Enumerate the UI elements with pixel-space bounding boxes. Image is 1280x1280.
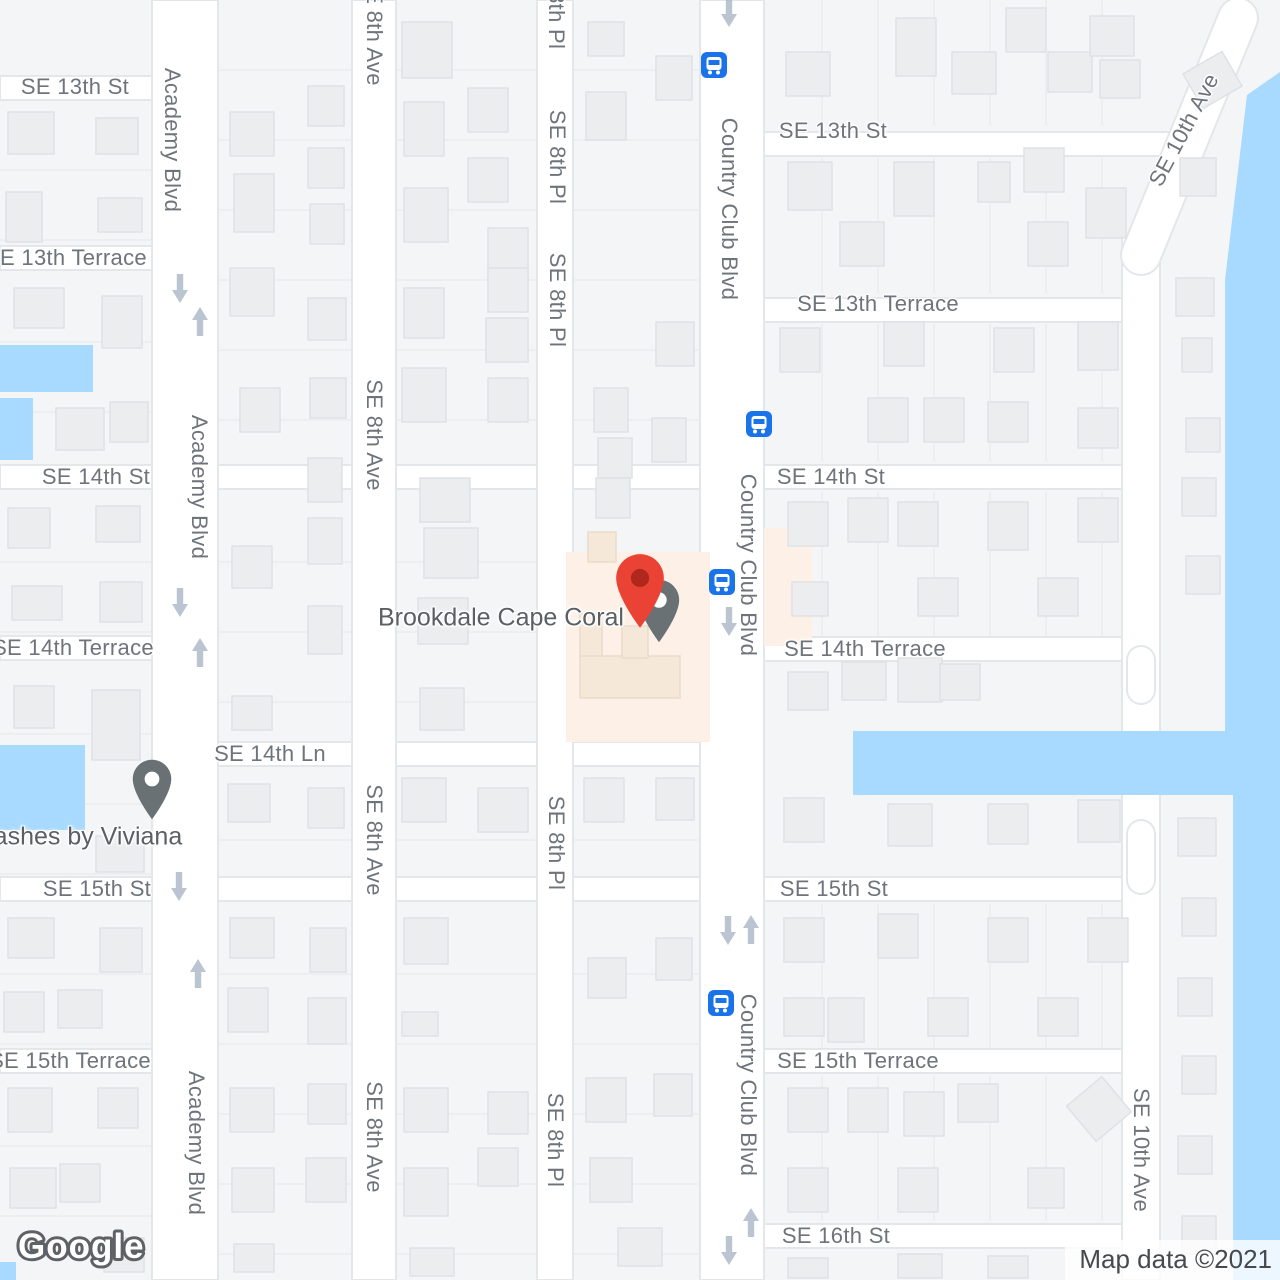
street-label: SE 8th Ave (361, 379, 387, 490)
street-label: SE 8th Ave (361, 784, 387, 895)
one-way-arrow-down-icon (168, 870, 190, 908)
map-pin-gray-viviana[interactable] (131, 758, 173, 826)
bus-stop-icon[interactable] (709, 569, 735, 600)
street-label: SE 14th St (42, 464, 150, 490)
google-logo-text: Google (18, 1227, 145, 1266)
street-label: SE 13th St (779, 118, 887, 144)
street-label: SE 15th Terrace (0, 1048, 151, 1074)
one-way-arrow-up-icon (740, 913, 762, 951)
street-label: SE 15th Terrace (777, 1048, 939, 1074)
street-label: Country Club Blvd (735, 994, 761, 1176)
street-label: SE 14th Terrace (0, 635, 154, 661)
one-way-arrow-up-icon (187, 957, 209, 995)
bus-stop-icon[interactable] (701, 52, 727, 83)
street-label: SE 14th Ln (214, 741, 326, 767)
street-label: SE 8th Pl (542, 1093, 568, 1187)
street-label: Academy Blvd (159, 68, 185, 212)
map-canvas[interactable]: Academy BlvdAcademy BlvdAcademy BlvdSE 8… (0, 0, 1280, 1280)
street-label: SE 16th St (782, 1223, 890, 1249)
one-way-arrow-up-icon (189, 636, 211, 674)
street-label: SE 13th St (21, 74, 129, 100)
poi-label[interactable]: Lashes by Viviana (0, 823, 182, 852)
street-label: SE 8th Ave (361, 1081, 387, 1192)
one-way-arrow-down-icon (717, 914, 739, 952)
street-label: SE 8th Pl (544, 110, 570, 204)
street-label: SE 8th Pl (544, 253, 570, 347)
street-label: Academy Blvd (183, 1071, 209, 1215)
street-label: SE 15th St (780, 876, 888, 902)
street-label: SE 10th Ave (1143, 69, 1224, 191)
one-way-arrow-down-icon (718, 0, 740, 34)
map-pin-red-brookdale[interactable] (614, 552, 666, 635)
map-attribution: Map data ©2021 (1065, 1240, 1280, 1280)
street-label: Country Club Blvd (716, 118, 742, 300)
street-label: Academy Blvd (186, 415, 212, 559)
street-label: SE 8th Pl (543, 796, 569, 890)
bus-stop-icon[interactable] (708, 990, 734, 1021)
one-way-arrow-down-icon (169, 586, 191, 624)
street-label: SE 13th Terrace (0, 245, 147, 271)
one-way-arrow-down-icon (718, 1234, 740, 1272)
street-label: SE 15th St (43, 876, 151, 902)
bus-stop-icon[interactable] (746, 411, 772, 442)
street-label: SE 14th St (777, 464, 885, 490)
poi-label[interactable]: Brookdale Cape Coral (378, 604, 624, 633)
street-label: SE 8th Pl (543, 0, 569, 49)
one-way-arrow-down-icon (718, 605, 740, 643)
street-label: SE 8th Ave (361, 0, 387, 86)
one-way-arrow-down-icon (169, 272, 191, 310)
one-way-arrow-up-icon (189, 305, 211, 343)
street-label: SE 13th Terrace (797, 291, 959, 317)
map-overlay-layer: Academy BlvdAcademy BlvdAcademy BlvdSE 8… (0, 0, 1280, 1280)
google-logo[interactable]: Google (14, 1220, 174, 1272)
one-way-arrow-up-icon (740, 1206, 762, 1244)
street-label: SE 10th Ave (1128, 1088, 1154, 1212)
street-label: SE 14th Terrace (784, 636, 946, 662)
